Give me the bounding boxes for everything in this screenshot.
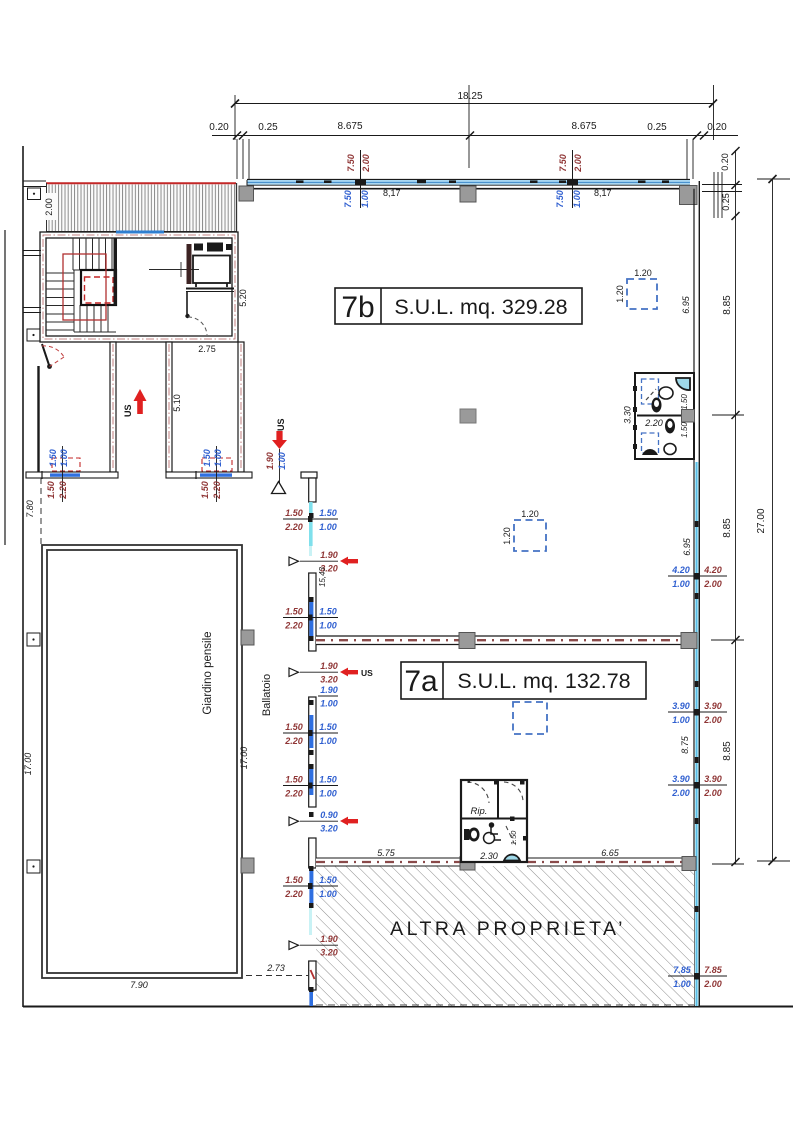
svg-text:7.85: 7.85	[673, 965, 692, 975]
svg-text:2.20: 2.20	[284, 621, 303, 631]
svg-text:2.20: 2.20	[212, 481, 222, 500]
svg-text:8,17: 8,17	[594, 188, 612, 198]
svg-text:1.50: 1.50	[680, 422, 689, 438]
svg-text:3.90: 3.90	[704, 774, 722, 784]
svg-text:1.90: 1.90	[320, 550, 338, 560]
svg-text:2.20: 2.20	[284, 889, 303, 899]
svg-text:US: US	[123, 404, 133, 417]
svg-text:1.50: 1.50	[319, 875, 337, 885]
svg-text:2.20: 2.20	[644, 418, 663, 428]
svg-text:2.20: 2.20	[58, 481, 68, 500]
svg-text:7a: 7a	[404, 665, 438, 698]
svg-text:8.75: 8.75	[680, 735, 690, 754]
svg-text:3.20: 3.20	[320, 948, 338, 958]
svg-text:1.90: 1.90	[265, 452, 275, 470]
svg-text:1.20: 1.20	[521, 509, 539, 519]
svg-text:0.25: 0.25	[258, 122, 278, 133]
svg-text:0.25: 0.25	[647, 122, 667, 133]
svg-text:1.90: 1.90	[320, 661, 338, 671]
svg-text:1.00: 1.00	[319, 621, 337, 631]
svg-text:7.85: 7.85	[704, 965, 723, 975]
svg-text:1.50: 1.50	[319, 508, 337, 518]
svg-text:8.85: 8.85	[722, 518, 733, 538]
svg-text:8,17: 8,17	[383, 188, 401, 198]
svg-text:2.00: 2.00	[703, 715, 722, 725]
svg-text:8.675: 8.675	[571, 121, 596, 132]
svg-text:0.20: 0.20	[707, 122, 727, 133]
svg-text:S.U.L. mq. 329.28: S.U.L. mq. 329.28	[394, 295, 567, 319]
svg-text:1.00: 1.00	[59, 449, 69, 467]
svg-text:4.20: 4.20	[671, 565, 690, 575]
svg-text:ALTRA PROPRIETA’: ALTRA PROPRIETA’	[390, 918, 626, 940]
svg-text:1.20: 1.20	[615, 285, 625, 303]
svg-text:1.50: 1.50	[319, 775, 337, 785]
svg-text:1.00: 1.00	[213, 449, 223, 467]
svg-text:Rip.: Rip.	[471, 806, 488, 817]
svg-text:1.00: 1.00	[672, 715, 690, 725]
svg-text:7.50: 7.50	[346, 154, 356, 172]
svg-text:1.00: 1.00	[319, 736, 337, 746]
svg-text:1.00: 1.00	[672, 579, 690, 589]
svg-text:4.20: 4.20	[703, 565, 722, 575]
svg-text:1.50: 1.50	[285, 722, 303, 732]
svg-text:1.20: 1.20	[502, 527, 512, 545]
svg-text:2.00: 2.00	[671, 788, 690, 798]
svg-text:6.65: 6.65	[601, 848, 620, 858]
svg-text:2.20: 2.20	[284, 736, 303, 746]
svg-text:2.00: 2.00	[361, 154, 371, 173]
svg-text:1.50: 1.50	[285, 775, 303, 785]
svg-text:2.00: 2.00	[44, 198, 54, 216]
svg-text:7b: 7b	[341, 291, 374, 324]
svg-text:5.20: 5.20	[238, 289, 248, 307]
svg-text:7.50: 7.50	[555, 190, 565, 208]
svg-text:1.00: 1.00	[277, 452, 287, 470]
svg-text:0.90: 0.90	[320, 810, 338, 820]
svg-text:US: US	[276, 418, 286, 431]
svg-text:1.50: 1.50	[285, 875, 303, 885]
svg-text:17.00: 17.00	[239, 747, 249, 770]
svg-text:2.00: 2.00	[703, 788, 722, 798]
svg-text:1.00: 1.00	[319, 889, 337, 899]
svg-text:1.00: 1.00	[320, 699, 338, 709]
svg-text:1.50: 1.50	[509, 830, 518, 845]
svg-text:1.90: 1.90	[320, 934, 338, 944]
svg-text:2.20: 2.20	[284, 522, 303, 532]
svg-text:1.00: 1.00	[319, 789, 337, 799]
svg-text:0.20: 0.20	[720, 153, 730, 171]
svg-text:5.75: 5.75	[377, 848, 396, 858]
svg-text:3.20: 3.20	[320, 675, 338, 685]
svg-text:2.30: 2.30	[479, 851, 498, 861]
svg-text:1.00: 1.00	[319, 522, 337, 532]
svg-text:1.50: 1.50	[200, 481, 210, 499]
svg-text:1.50: 1.50	[202, 449, 212, 467]
svg-text:2.00: 2.00	[703, 979, 722, 989]
svg-text:3.20: 3.20	[320, 824, 338, 834]
svg-text:0.25: 0.25	[721, 193, 731, 211]
svg-text:15,43: 15,43	[318, 566, 327, 587]
svg-text:S.U.L. mq. 132.78: S.U.L. mq. 132.78	[457, 669, 630, 693]
svg-text:1.00: 1.00	[572, 190, 582, 208]
svg-text:18.25: 18.25	[457, 91, 482, 102]
svg-text:2.00: 2.00	[573, 154, 583, 173]
svg-text:7.50: 7.50	[343, 190, 353, 208]
svg-text:27.00: 27.00	[756, 508, 767, 533]
svg-text:1.50: 1.50	[46, 481, 56, 499]
svg-text:3.90: 3.90	[704, 701, 722, 711]
svg-text:2.00: 2.00	[703, 579, 722, 589]
svg-text:7.50: 7.50	[558, 154, 568, 172]
svg-text:3.90: 3.90	[672, 701, 690, 711]
svg-text:1.90: 1.90	[320, 685, 338, 695]
svg-text:3.30: 3.30	[623, 406, 633, 424]
svg-text:1.50: 1.50	[319, 722, 337, 732]
svg-text:6.95: 6.95	[681, 295, 691, 314]
svg-text:2.73: 2.73	[266, 963, 285, 973]
svg-text:8.85: 8.85	[722, 295, 733, 315]
svg-text:1.50: 1.50	[285, 607, 303, 617]
svg-text:17.00: 17.00	[23, 753, 33, 776]
svg-text:3.90: 3.90	[672, 774, 690, 784]
svg-text:5.10: 5.10	[172, 394, 182, 412]
svg-text:1.50: 1.50	[48, 449, 58, 467]
svg-text:1.00: 1.00	[360, 190, 370, 208]
svg-text:7.80: 7.80	[25, 500, 35, 518]
svg-text:1.50: 1.50	[680, 394, 689, 410]
svg-text:0.20: 0.20	[209, 122, 229, 133]
svg-text:Giardino pensile: Giardino pensile	[202, 631, 214, 714]
svg-text:1.50: 1.50	[285, 508, 303, 518]
svg-text:8.85: 8.85	[722, 741, 733, 761]
svg-text:US: US	[361, 668, 373, 678]
svg-text:1.00: 1.00	[673, 979, 691, 989]
svg-text:6.95: 6.95	[682, 537, 692, 556]
svg-text:2.20: 2.20	[284, 789, 303, 799]
svg-text:8.675: 8.675	[337, 121, 362, 132]
svg-text:1.20: 1.20	[634, 268, 652, 278]
svg-text:1.50: 1.50	[319, 607, 337, 617]
svg-text:7.90: 7.90	[130, 980, 148, 990]
svg-text:2.75: 2.75	[198, 344, 216, 354]
svg-text:Ballatoio: Ballatoio	[261, 674, 273, 716]
